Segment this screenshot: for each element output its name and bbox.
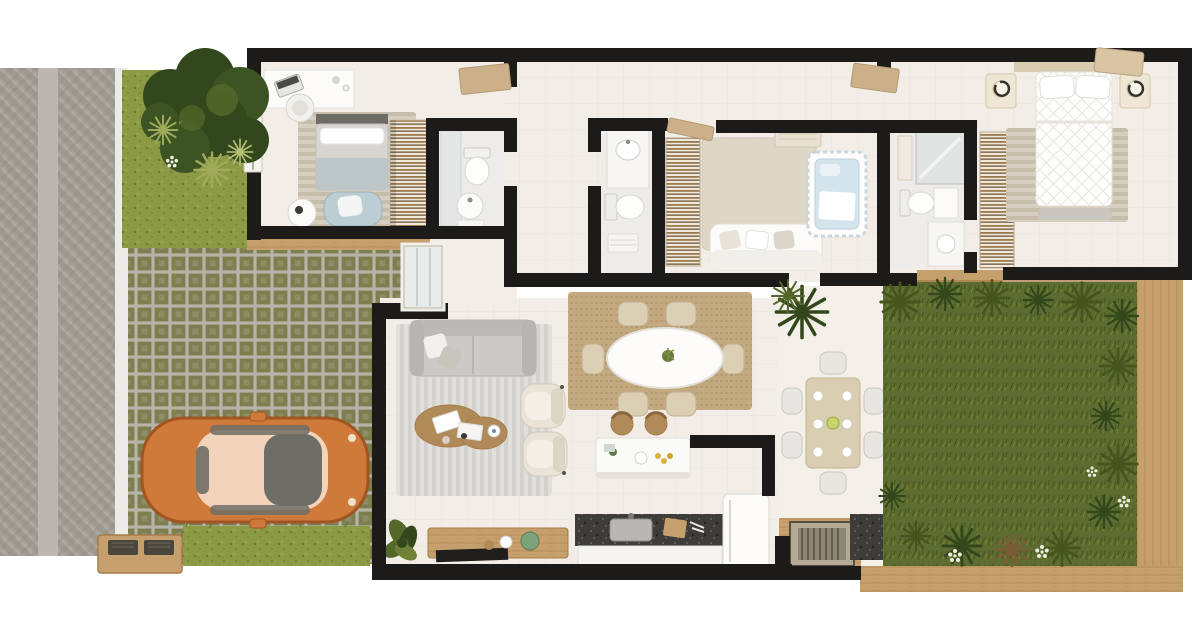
wall-bath3-north [890, 120, 977, 133]
patio-chair [864, 388, 884, 414]
console-decor-green [521, 532, 539, 550]
dining-area [568, 292, 752, 416]
wall-mid-south [504, 273, 789, 287]
bath2-towels [608, 234, 638, 252]
wall-master-south [1003, 267, 1183, 280]
wall-top [247, 48, 1192, 62]
bath2-toilet-tank [605, 194, 617, 220]
wall-bath1-north [426, 118, 517, 131]
desk-decor-2 [343, 85, 349, 91]
car-mirror-bottom [250, 519, 266, 528]
coffee-table-bottle [461, 433, 467, 439]
dining-chair [666, 392, 696, 416]
nursery-closet [666, 138, 700, 266]
living-sofa [410, 320, 536, 376]
dining-chair [618, 302, 648, 326]
master-ac-unit [1094, 48, 1144, 77]
bath3-shelf [898, 136, 912, 180]
patio-chair [820, 472, 846, 494]
floor-plan-canvas [0, 0, 1200, 628]
car [142, 412, 368, 528]
driveway-lawn-strip [183, 526, 370, 566]
tv-console [428, 528, 568, 562]
side-table [288, 199, 316, 227]
bath3-cabinet [934, 188, 958, 218]
wall-bedroom1-south [247, 226, 517, 239]
tv [436, 548, 508, 563]
bed1-headboard [316, 114, 388, 124]
master-pillow-left [1039, 75, 1074, 99]
master-foot-bench [1038, 208, 1112, 220]
patio-centerpiece [827, 417, 839, 429]
wall-nursery-east [877, 120, 890, 273]
bed1-blanket [316, 158, 388, 190]
dining-chair [722, 344, 744, 374]
island-fruit [655, 453, 661, 459]
kitchen-faucet [628, 513, 634, 519]
car-mirror-top [250, 412, 266, 421]
dining-chair [666, 302, 696, 326]
bath3-sink [937, 235, 955, 253]
patio-chair [864, 432, 884, 458]
crib-blanket [818, 191, 855, 221]
bath2-toilet [616, 195, 644, 219]
car-headlight-top [348, 434, 356, 442]
armchair-2 [523, 432, 567, 476]
wall-bath2-east [652, 118, 665, 273]
wall-nursery-north [716, 120, 880, 133]
car-headlight-bottom [348, 498, 356, 506]
car-side-window-bottom [210, 505, 310, 515]
crib-pillow [820, 164, 840, 176]
bath1-sink [457, 193, 483, 219]
front-glass-door [402, 244, 444, 310]
cutting-board [663, 518, 687, 539]
car-side-window-top [210, 425, 310, 435]
street-walkway-strip [38, 68, 58, 556]
door-leaf-vestibule [459, 63, 511, 94]
island-plate [635, 452, 647, 464]
coffee-table-tray [457, 422, 483, 440]
bath1-toilet [465, 157, 489, 185]
patio-chair [782, 388, 802, 414]
bath3-toilet [908, 192, 934, 214]
nursery-sofa [710, 224, 822, 270]
garden-wood-border-bottom [860, 566, 1183, 592]
wall-bed1-bath1 [426, 131, 439, 226]
console-decor-bowl [500, 536, 512, 548]
wall-bottom [372, 564, 792, 580]
car-windshield [264, 434, 322, 506]
garden-wood-border-right [1137, 280, 1183, 572]
wall-living-west [372, 303, 386, 580]
utility-box [98, 535, 182, 573]
barbecue-grill [790, 522, 854, 566]
wall-right [1178, 48, 1192, 280]
patio-chair [782, 432, 802, 458]
crib [808, 152, 866, 236]
armchair-1 [521, 384, 565, 428]
master-pillow-right [1075, 75, 1110, 99]
dining-chair [582, 344, 604, 374]
console-decor-wood [484, 540, 494, 550]
car-rear-window [196, 446, 209, 494]
street [0, 68, 128, 556]
patio-chair [820, 352, 846, 374]
kitchen-sink [610, 519, 652, 541]
bed1-pillow [320, 128, 384, 144]
desk-decor [332, 76, 340, 84]
